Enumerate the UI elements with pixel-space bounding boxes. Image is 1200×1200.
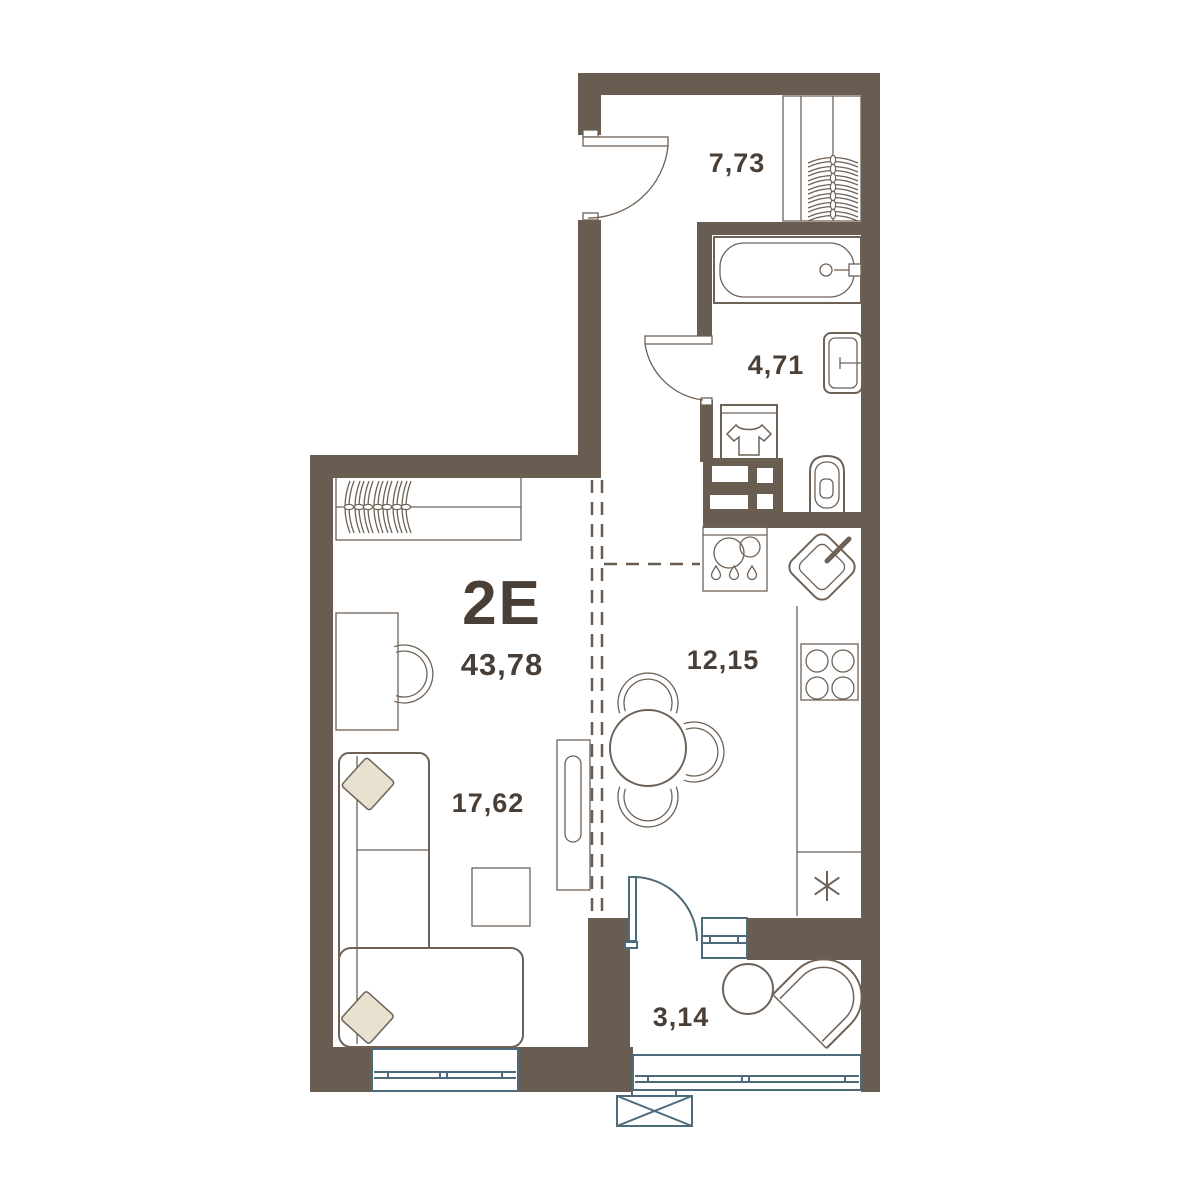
small-window <box>702 918 747 958</box>
tv-stand <box>557 740 590 890</box>
door-hinge-mark <box>583 213 598 220</box>
bathroom-door-leaf <box>645 336 712 344</box>
zoning-dashed-lines <box>592 480 700 914</box>
water-drop-icons <box>712 566 757 580</box>
wall-right <box>861 73 880 1092</box>
hanger-icons <box>344 481 411 533</box>
living-room-area-label: 17,62 <box>452 788 525 818</box>
bathroom-area-label: 4,71 <box>748 350 805 380</box>
wall-entry-above-door <box>578 73 601 135</box>
wall-hall-left <box>578 220 601 478</box>
bathtub-drain-icon <box>820 264 832 276</box>
hall-wardrobe <box>783 96 861 221</box>
ac-unit-basket <box>617 1090 692 1126</box>
wall-below-bath-door <box>700 400 713 462</box>
wall-living-balcony <box>588 918 630 1050</box>
dining-chair <box>618 673 678 713</box>
entrance-door-leaf <box>583 137 668 146</box>
washbasin <box>824 333 862 393</box>
wall-top <box>578 73 880 95</box>
wall-kitchen-balcony <box>747 918 861 960</box>
dining-table <box>610 710 686 786</box>
dishwasher-unit <box>703 527 767 591</box>
cooktop-4-burner <box>801 644 858 700</box>
wall-left <box>310 455 333 1092</box>
entrance-door <box>583 130 668 220</box>
living-room-window <box>372 1049 518 1091</box>
floor-plan-canvas: 2Е 43,78 7,73 4,71 12,15 17,62 3,14 <box>0 0 1200 1200</box>
refrigerator-asterisk-icon <box>815 871 840 901</box>
corner-sink <box>785 530 859 604</box>
wall-hall-bath-vertical <box>697 222 712 337</box>
washing-machine <box>721 405 777 460</box>
floor-plan-page: 2Е 43,78 7,73 4,71 12,15 17,62 3,14 <box>0 0 1200 1200</box>
tshirt-icon <box>727 425 771 455</box>
bathtub <box>714 237 861 303</box>
kitchen-counter <box>797 606 861 916</box>
balcony-area-label: 3,14 <box>653 1002 710 1032</box>
wall-hall-bath-horizontal <box>697 222 861 235</box>
bathroom-door <box>645 329 712 405</box>
kitchen-area-label: 12,15 <box>687 645 760 675</box>
balcony-glazing-band <box>633 1055 861 1090</box>
unit-type-label: 2Е <box>462 569 542 638</box>
wall-bath-bottom <box>703 512 861 528</box>
dining-table-set <box>610 673 724 827</box>
bathroom-door-swing <box>645 344 703 400</box>
balcony-door-leaf <box>629 877 636 941</box>
total-area-label: 43,78 <box>461 647 544 682</box>
coffee-table <box>472 868 530 926</box>
desk <box>336 613 398 730</box>
hallway-area-label: 7,73 <box>709 148 766 178</box>
balcony-table <box>723 964 773 1014</box>
balcony-door <box>625 877 697 948</box>
desk-chair <box>394 645 433 703</box>
entrance-door-swing <box>588 146 668 218</box>
door-hinge-mark <box>625 942 637 948</box>
living-wardrobe <box>336 474 521 540</box>
toilet <box>810 456 844 512</box>
hanger-icons <box>808 155 858 221</box>
bathtub-faucet-icon <box>849 264 861 276</box>
dining-chair <box>684 722 724 782</box>
dining-chair <box>618 787 678 827</box>
balcony-door-swing <box>633 877 697 941</box>
door-hinge-mark <box>583 130 598 137</box>
